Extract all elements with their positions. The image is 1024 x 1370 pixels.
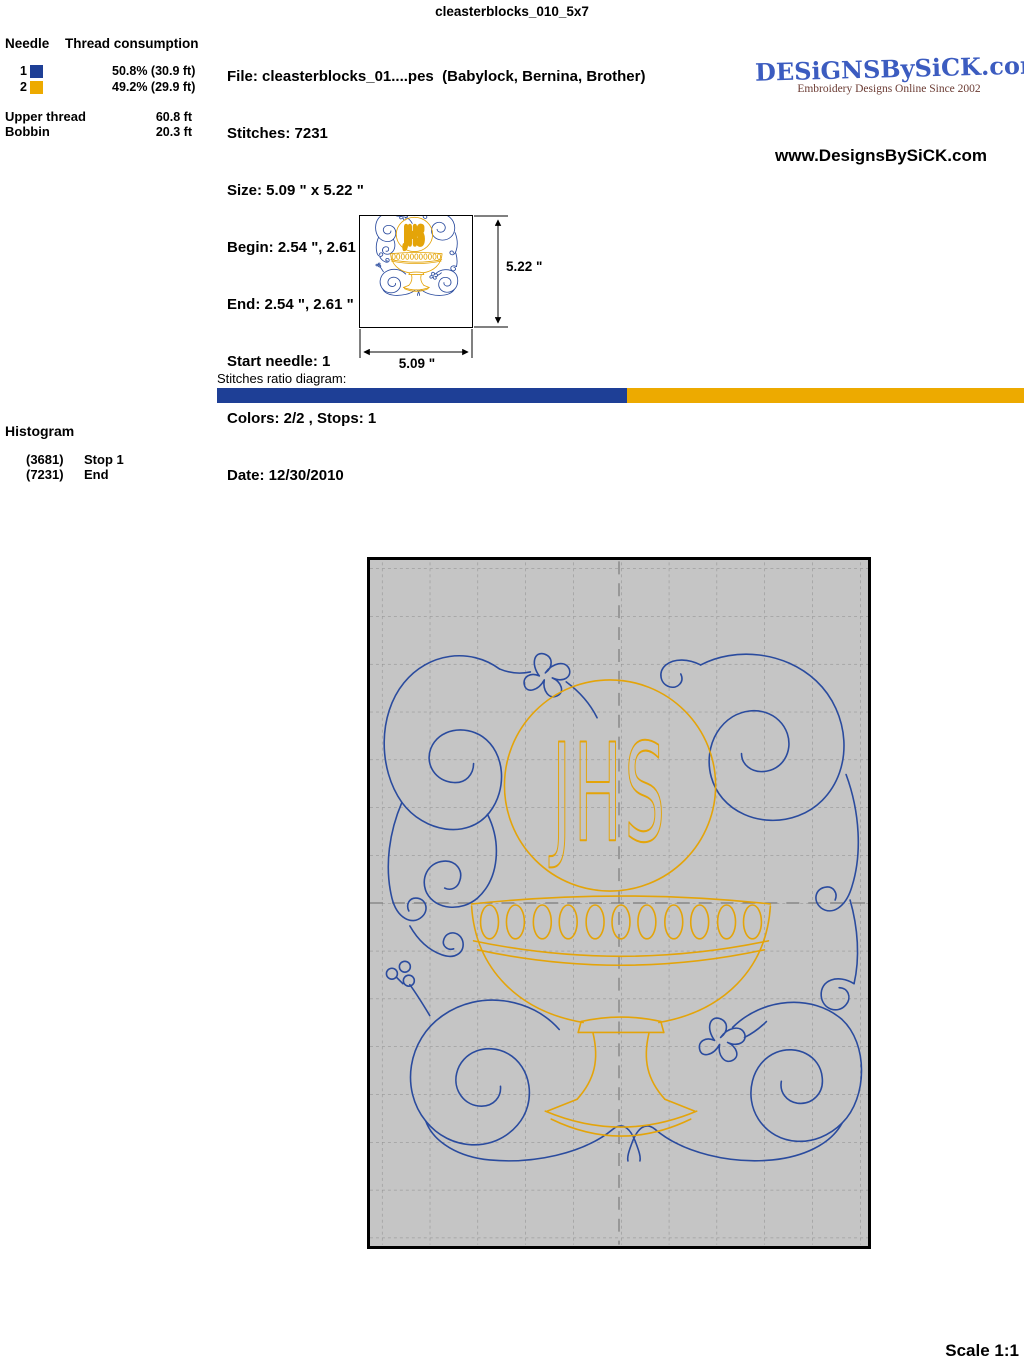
page-title: cleasterblocks_010_5x7 bbox=[0, 4, 1024, 19]
print-sheet: JHS bbox=[0, 0, 1024, 1370]
upper-thread-value: 60.8 ft bbox=[140, 110, 192, 124]
ratio-segment bbox=[627, 388, 1024, 403]
dimension-lines bbox=[350, 208, 565, 368]
histogram-title: Histogram bbox=[5, 423, 74, 439]
histogram-entries: (3681) Stop 1 (7231) End bbox=[26, 452, 124, 482]
website-url: www.DesignsBySiCK.com bbox=[745, 146, 1017, 166]
ratio-segment bbox=[217, 388, 627, 403]
file-info-line: Stitches: 7231 bbox=[227, 124, 645, 143]
file-info-line: Date: 12/30/2010 bbox=[227, 466, 645, 485]
needle-number: 2 bbox=[20, 80, 27, 94]
bobbin-value: 20.3 ft bbox=[140, 125, 192, 139]
upper-thread-label: Upper thread bbox=[5, 109, 86, 124]
consumption-column-header: Thread consumption bbox=[65, 36, 199, 51]
scale-label: Scale 1:1 bbox=[945, 1341, 1019, 1361]
histogram-entry: (3681) Stop 1 bbox=[26, 452, 124, 467]
ratio-diagram-label: Stitches ratio diagram: bbox=[217, 371, 346, 386]
needle-number: 1 bbox=[20, 64, 27, 78]
histogram-entry: (7231) End bbox=[26, 467, 124, 482]
hoop-preview-art bbox=[370, 560, 868, 1246]
file-info-line: Colors: 2/2 , Stops: 1 bbox=[227, 409, 645, 428]
stitch-count: (3681) bbox=[26, 452, 74, 467]
file-info-line: Size: 5.09 " x 5.22 " bbox=[227, 181, 645, 200]
stitches-ratio-bar bbox=[217, 388, 1024, 403]
stitch-count: (7231) bbox=[26, 467, 74, 482]
needle-column-header: Needle bbox=[5, 36, 49, 51]
brand-logo: DESiGNSBySiCK.com Embroidery Designs Onl… bbox=[755, 54, 1023, 95]
file-info-line: File: cleasterblocks_01....pes (Babylock… bbox=[227, 67, 645, 86]
height-dimension-label: 5.22 " bbox=[506, 259, 542, 274]
stop-label: Stop 1 bbox=[84, 452, 124, 467]
logo-wordmark: DESiGNSBySiCK.com bbox=[755, 50, 1024, 87]
bobbin-label: Bobbin bbox=[5, 124, 50, 139]
thread-consumption-value: 50.8% (30.9 ft) bbox=[112, 64, 195, 78]
hoop-preview bbox=[367, 557, 871, 1249]
needle-color-swatch bbox=[30, 81, 43, 94]
width-dimension-label: 5.09 " bbox=[386, 356, 448, 371]
needle-color-swatch bbox=[30, 65, 43, 78]
thread-consumption-value: 49.2% (29.9 ft) bbox=[112, 80, 195, 94]
end-label: End bbox=[84, 467, 109, 482]
